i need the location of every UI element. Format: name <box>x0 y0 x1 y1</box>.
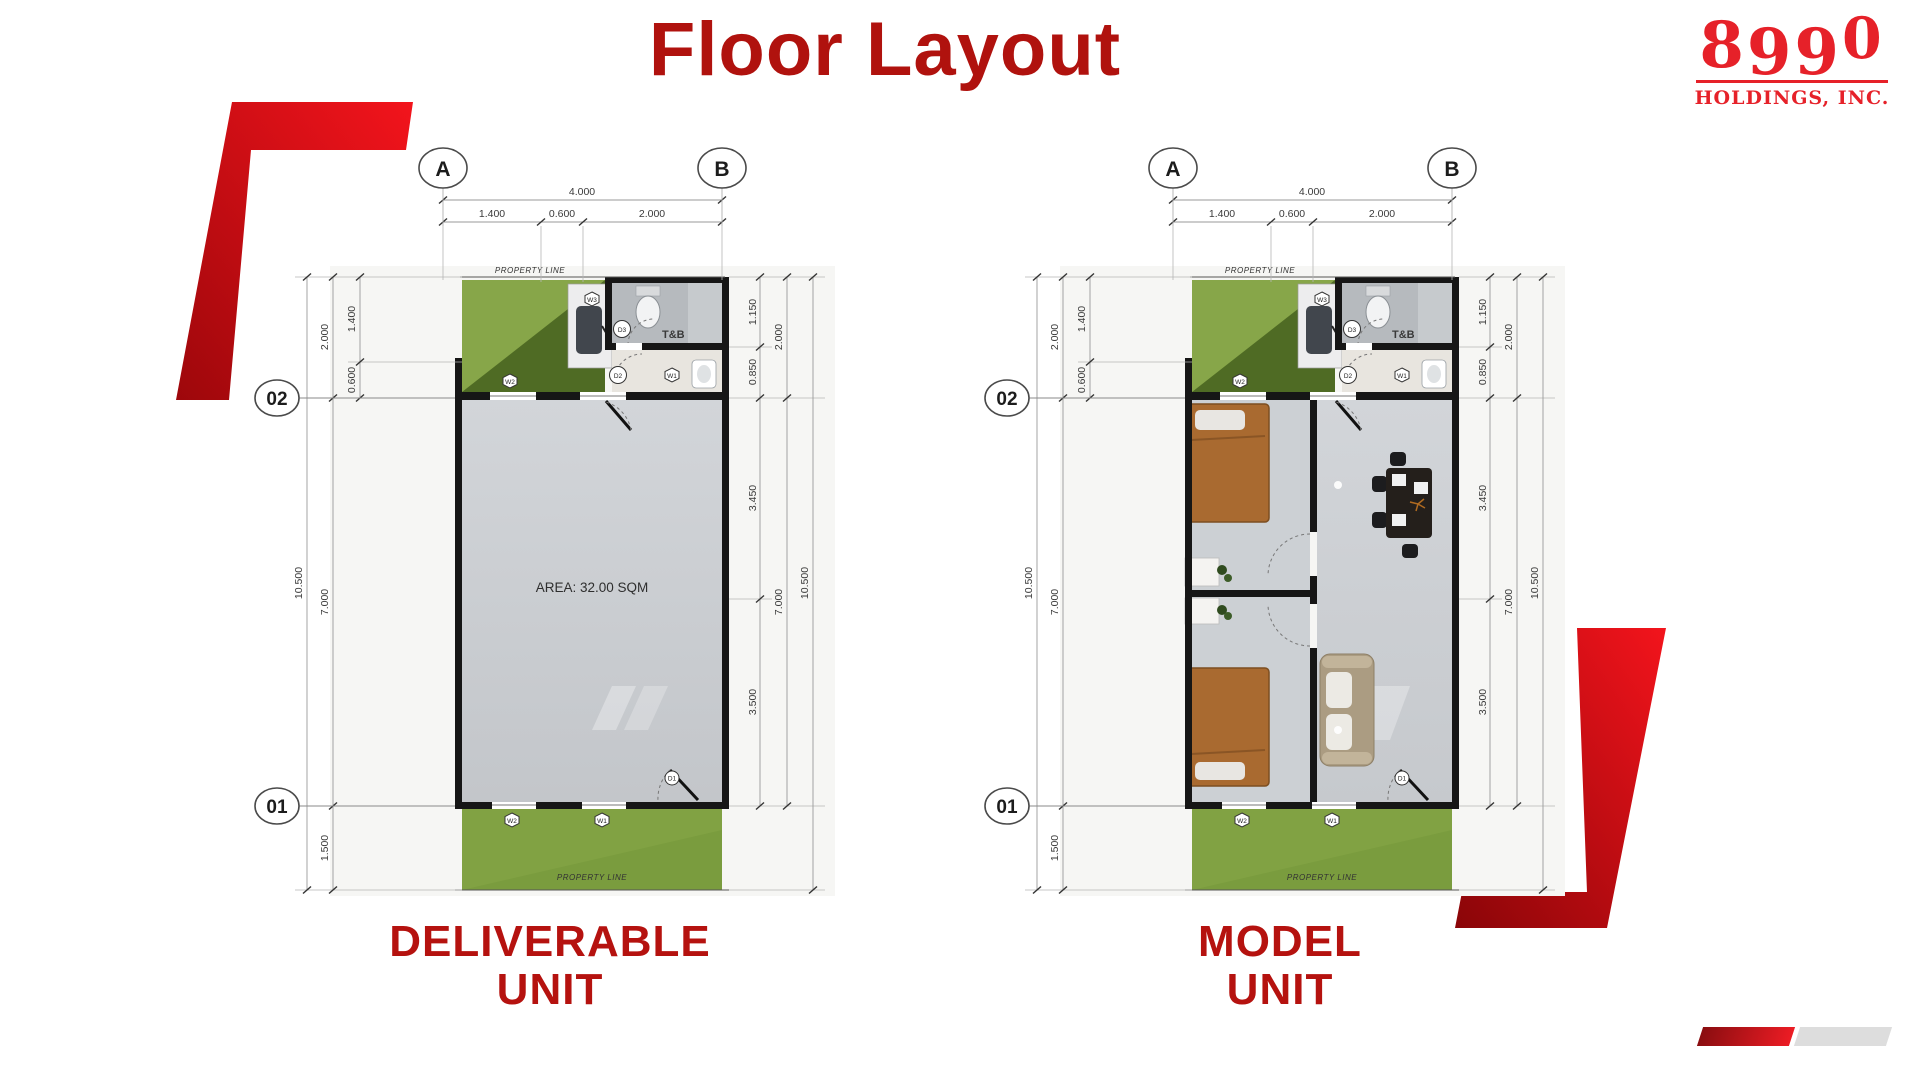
svg-text:2.000: 2.000 <box>319 324 331 350</box>
svg-text:1.500: 1.500 <box>319 835 331 861</box>
door-tag-d2: D2 <box>1344 373 1353 380</box>
grid-row-02: 02 <box>266 389 287 410</box>
svg-text:1.150: 1.150 <box>747 299 759 325</box>
svg-text:7.000: 7.000 <box>1049 589 1061 615</box>
grid-row-01: 01 <box>996 797 1018 818</box>
property-line-label-top: PROPERTY LINE <box>1225 266 1295 275</box>
svg-text:2.000: 2.000 <box>639 208 665 220</box>
room-label-tb: T&B <box>1392 329 1415 341</box>
caption-deliverable-unit: DELIVERABLE UNIT <box>240 918 860 1015</box>
floorplan-deliverable-unit: T&B D3 D2 W1 AREA: 32.00 SQM <box>240 130 860 1070</box>
grid-col-b: B <box>1444 158 1459 181</box>
toilet-and-bath: T&B D3 <box>1342 283 1452 347</box>
grid-col-b: B <box>714 158 729 181</box>
deliverable-unit-drawing: T&B D3 D2 W1 AREA: 32.00 SQM <box>240 130 860 930</box>
window-tag-w2: W2 <box>507 818 517 825</box>
svg-text:7.000: 7.000 <box>773 589 785 615</box>
property-line-label-bottom: PROPERTY LINE <box>557 873 627 882</box>
door-tag-d1: D1 <box>668 776 677 783</box>
window-tag-w1: W1 <box>1327 818 1337 825</box>
window-tag-w2: W2 <box>1237 818 1247 825</box>
svg-text:3.500: 3.500 <box>747 689 759 715</box>
toilet-and-bath: T&B D3 <box>612 283 722 347</box>
door-tag-d3: D3 <box>1348 327 1357 334</box>
svg-text:7.000: 7.000 <box>319 589 331 615</box>
floorplan-model-unit: T&B D3 D2 W1 <box>970 130 1590 1070</box>
property-line-label-top: PROPERTY LINE <box>495 266 565 275</box>
svg-text:1.400: 1.400 <box>346 306 358 332</box>
back-lawn: W2 W1 PROPERTY LINE <box>455 809 729 890</box>
svg-text:1.500: 1.500 <box>1049 835 1061 861</box>
svg-text:1.150: 1.150 <box>1477 299 1489 325</box>
main-room-floor <box>462 400 722 802</box>
svg-text:1.400: 1.400 <box>1209 208 1235 220</box>
progress-bar-red <box>1697 1027 1795 1046</box>
svg-text:10.500: 10.500 <box>293 567 305 599</box>
svg-text:4.000: 4.000 <box>1299 186 1325 198</box>
svg-text:7.000: 7.000 <box>1503 589 1515 615</box>
model-unit-drawing: T&B D3 D2 W1 <box>970 130 1590 930</box>
door-tag-d1: D1 <box>1398 776 1407 783</box>
door-tag-d3: D3 <box>618 327 627 334</box>
svg-text:2.000: 2.000 <box>1049 324 1061 350</box>
svg-text:1.400: 1.400 <box>1076 306 1088 332</box>
svg-text:2.000: 2.000 <box>773 324 785 350</box>
entry-hall: D2 W1 <box>610 350 723 392</box>
svg-text:2.000: 2.000 <box>1503 324 1515 350</box>
svg-text:0.850: 0.850 <box>747 359 759 385</box>
window-tag-w1: W1 <box>597 818 607 825</box>
grid-col-a: A <box>435 158 450 181</box>
svg-text:2.000: 2.000 <box>1369 208 1395 220</box>
window-tag-w2: W2 <box>505 379 515 386</box>
window-tag-w1: W1 <box>1397 373 1407 380</box>
window-tag-w3: W3 <box>1317 297 1327 304</box>
svg-text:0.600: 0.600 <box>346 367 358 393</box>
grid-row-01: 01 <box>266 797 288 818</box>
svg-text:1.400: 1.400 <box>479 208 505 220</box>
grid-row-02: 02 <box>996 389 1017 410</box>
svg-text:0.600: 0.600 <box>1279 208 1305 220</box>
slide: Floor Layout 8990 HOLDINGS, INC. <box>0 0 1920 1080</box>
company-logo: 8990 HOLDINGS, INC. <box>1692 14 1892 109</box>
entry-hall: D2 W1 <box>1340 350 1453 392</box>
svg-text:4.000: 4.000 <box>569 186 595 198</box>
svg-text:10.500: 10.500 <box>799 567 811 599</box>
svg-text:0.850: 0.850 <box>1477 359 1489 385</box>
bed-2 <box>1187 668 1269 786</box>
sofa <box>1320 654 1374 766</box>
svg-text:0.600: 0.600 <box>549 208 575 220</box>
property-line-label-bottom: PROPERTY LINE <box>1287 873 1357 882</box>
window-tag-w3: W3 <box>587 297 597 304</box>
logo-subtitle: HOLDINGS, INC. <box>1692 87 1892 109</box>
svg-text:10.500: 10.500 <box>1023 567 1035 599</box>
back-lawn: W2 W1 PROPERTY LINE <box>1185 809 1459 890</box>
svg-text:3.450: 3.450 <box>747 485 759 511</box>
area-label: AREA: 32.00 SQM <box>536 580 649 595</box>
window-tag-w1: W1 <box>667 373 677 380</box>
page-title: Floor Layout <box>545 6 1225 93</box>
progress-bar-gray <box>1794 1027 1892 1046</box>
svg-text:3.450: 3.450 <box>1477 485 1489 511</box>
door-tag-d2: D2 <box>614 373 623 380</box>
svg-text:3.500: 3.500 <box>1477 689 1489 715</box>
room-label-tb: T&B <box>662 329 685 341</box>
svg-text:10.500: 10.500 <box>1529 567 1541 599</box>
bed-1 <box>1187 404 1269 522</box>
caption-model-unit: MODEL UNIT <box>970 918 1590 1015</box>
svg-text:0.600: 0.600 <box>1076 367 1088 393</box>
grid-col-a: A <box>1165 158 1180 181</box>
window-tag-w2: W2 <box>1235 379 1245 386</box>
logo-8990: 8990 <box>1699 14 1884 78</box>
